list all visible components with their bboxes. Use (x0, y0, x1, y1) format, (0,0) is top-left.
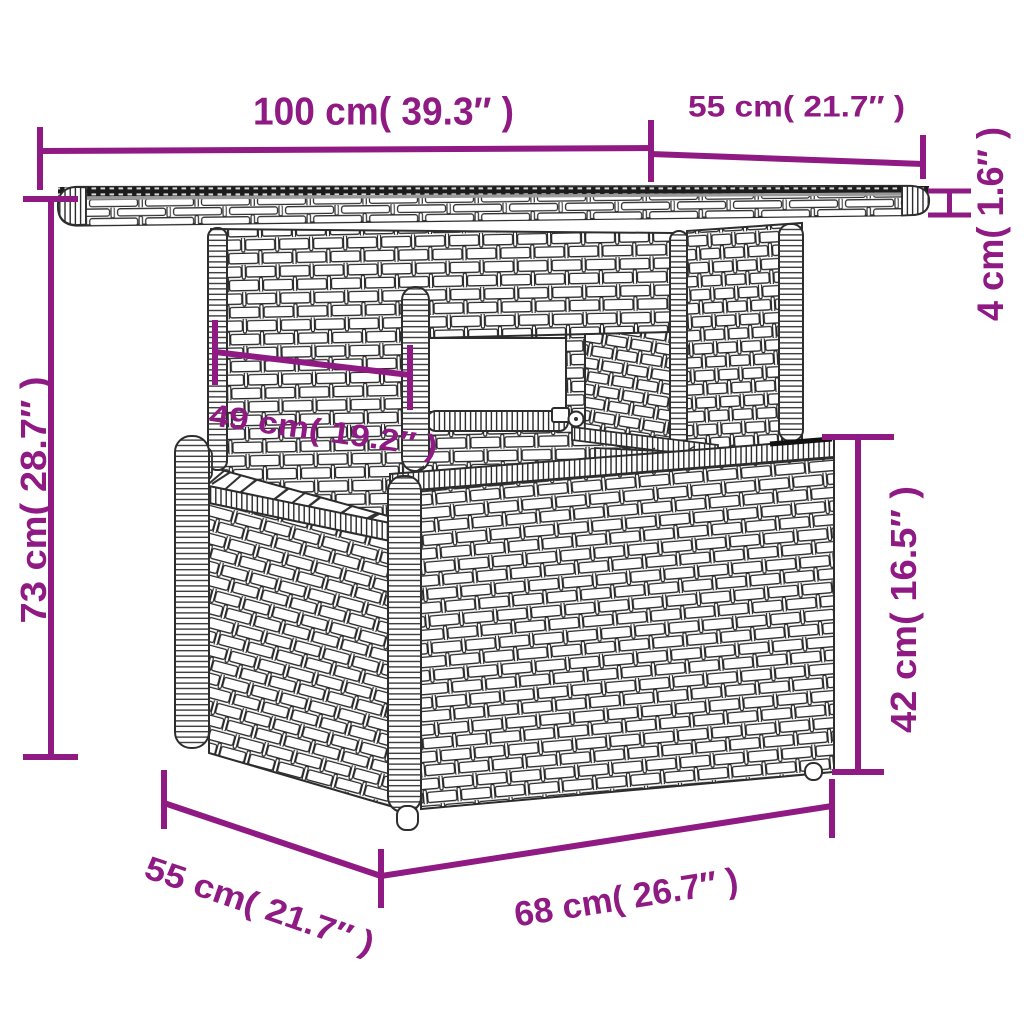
svg-text:73 cm( 28.7″ ): 73 cm( 28.7″ ) (13, 377, 54, 624)
svg-text:42 cm( 16.5″ ): 42 cm( 16.5″ ) (883, 486, 924, 733)
svg-text:55 cm( 21.7″ ): 55 cm( 21.7″ ) (688, 91, 905, 124)
svg-text:4 cm( 1.6″ ): 4 cm( 1.6″ ) (969, 127, 1011, 321)
svg-text:100 cm( 39.3″ ): 100 cm( 39.3″ ) (253, 91, 514, 134)
